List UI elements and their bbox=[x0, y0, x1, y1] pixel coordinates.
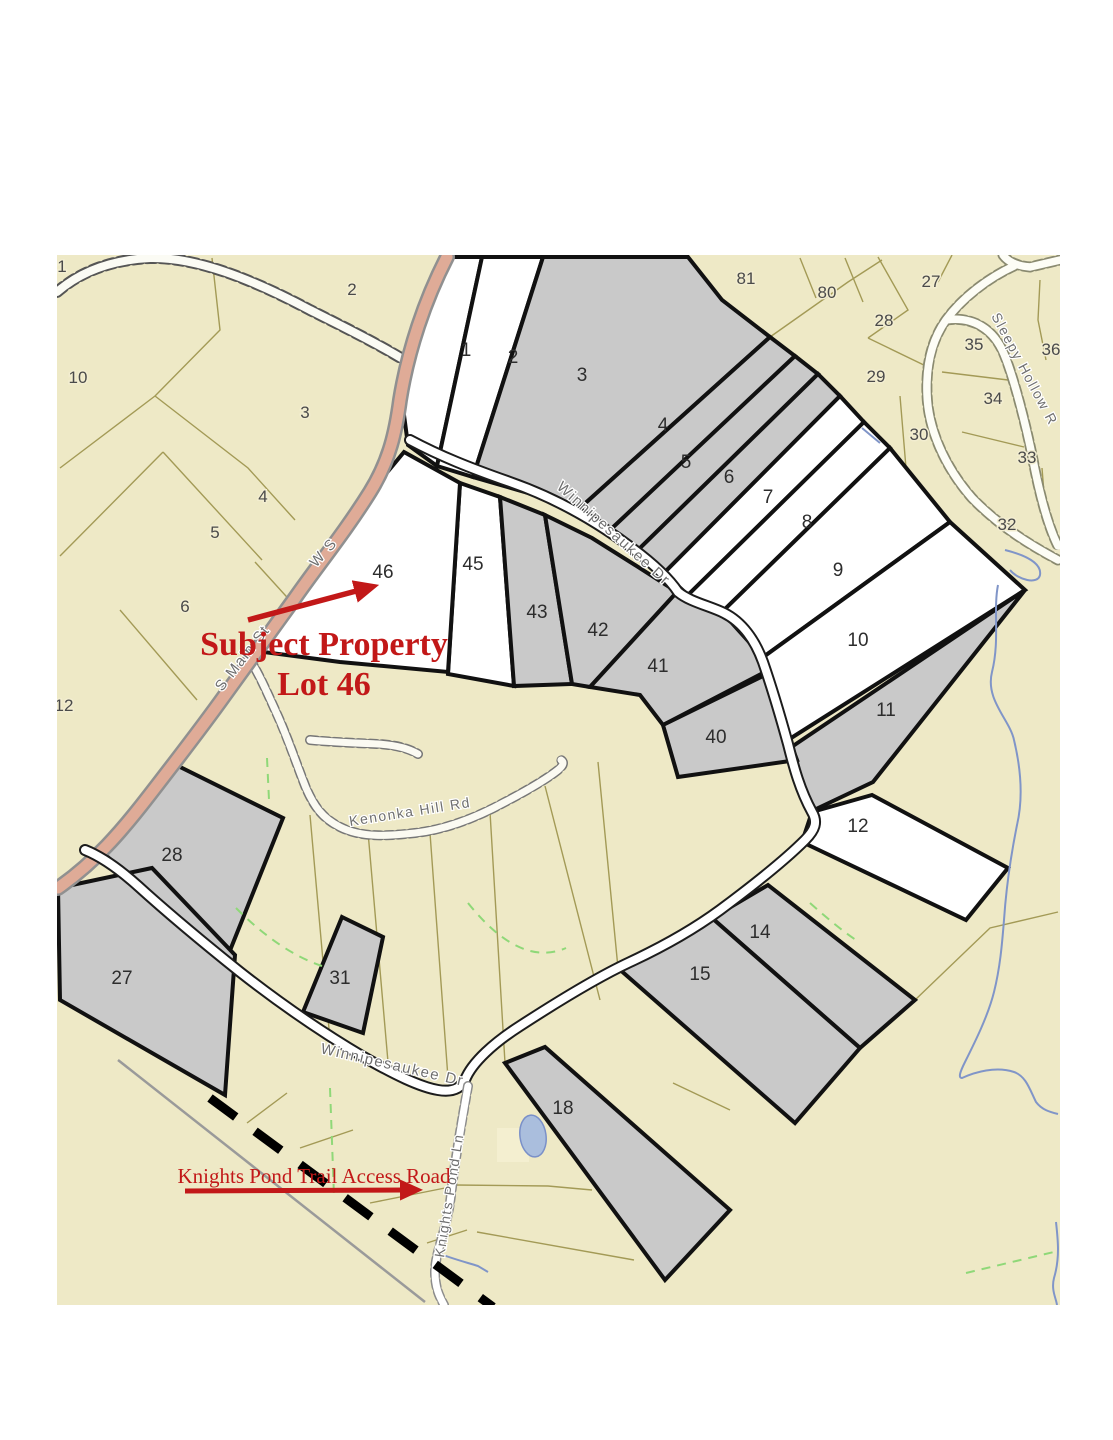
tax-map-page: 1 2 10 3 4 5 6 12 81 80 28 29 27 35 36 3… bbox=[0, 0, 1113, 1440]
trail-access-arrow bbox=[185, 1190, 405, 1191]
lot-label-1: 1 bbox=[461, 340, 472, 361]
lot-label-9: 9 bbox=[833, 560, 844, 581]
bg-lot-label: 2 bbox=[347, 280, 356, 299]
lot-label-28: 28 bbox=[161, 845, 182, 866]
bg-lot-label: 33 bbox=[1018, 448, 1037, 467]
bg-lot-label: 5 bbox=[210, 523, 219, 542]
lot-label-15: 15 bbox=[689, 964, 710, 985]
lot-label-45: 45 bbox=[462, 554, 483, 575]
lot-label-3: 3 bbox=[577, 365, 588, 386]
bg-lot-label: 1 bbox=[57, 257, 66, 276]
bg-lot-label: 12 bbox=[57, 696, 73, 715]
lot-label-8: 8 bbox=[802, 512, 813, 533]
bg-lot-label: 10 bbox=[69, 368, 88, 387]
lot-label-4: 4 bbox=[658, 415, 669, 436]
lot-label-42: 42 bbox=[587, 620, 608, 641]
bg-lot-label: 29 bbox=[867, 367, 886, 386]
bg-lot-label: 80 bbox=[818, 283, 837, 302]
subject-property-text-line2: Lot 46 bbox=[277, 666, 371, 703]
bg-lot-label: 30 bbox=[910, 425, 929, 444]
subject-property-text-line1: Subject Property bbox=[200, 626, 448, 663]
lot-label-43: 43 bbox=[526, 602, 547, 623]
lot-label-7: 7 bbox=[763, 487, 774, 508]
parcel-map-svg: 1 2 10 3 4 5 6 12 81 80 28 29 27 35 36 3… bbox=[57, 255, 1060, 1305]
lot-label-31: 31 bbox=[329, 968, 350, 989]
lot-label-14: 14 bbox=[749, 922, 771, 943]
lot-label-2: 2 bbox=[508, 347, 519, 368]
bg-lot-label: 32 bbox=[998, 515, 1017, 534]
bg-lot-label: 36 bbox=[1042, 340, 1060, 359]
lot-label-27: 27 bbox=[111, 968, 132, 989]
trail-access-text: Knights Pond Trail Access Road bbox=[177, 1164, 451, 1188]
bg-lot-label: 81 bbox=[737, 269, 756, 288]
bg-lot-label: 3 bbox=[300, 403, 309, 422]
bg-lot-label: 6 bbox=[180, 597, 189, 616]
bg-lot-label: 27 bbox=[922, 272, 941, 291]
lot-label-40: 40 bbox=[705, 727, 726, 748]
bg-lot-label: 4 bbox=[258, 487, 267, 506]
bg-lot-label: 35 bbox=[965, 335, 984, 354]
lot-label-18: 18 bbox=[552, 1098, 573, 1119]
bg-lot-label: 28 bbox=[875, 311, 894, 330]
lot-label-10: 10 bbox=[847, 630, 868, 651]
lot-label-46: 46 bbox=[372, 562, 393, 583]
bg-lot-label: 34 bbox=[984, 389, 1003, 408]
lot-label-11: 11 bbox=[876, 700, 896, 721]
lot-label-5: 5 bbox=[681, 452, 692, 473]
lot-label-6: 6 bbox=[724, 467, 735, 488]
lot-label-12: 12 bbox=[847, 816, 868, 837]
lot-label-41: 41 bbox=[647, 656, 668, 677]
parcel-map: 1 2 10 3 4 5 6 12 81 80 28 29 27 35 36 3… bbox=[57, 255, 1060, 1305]
